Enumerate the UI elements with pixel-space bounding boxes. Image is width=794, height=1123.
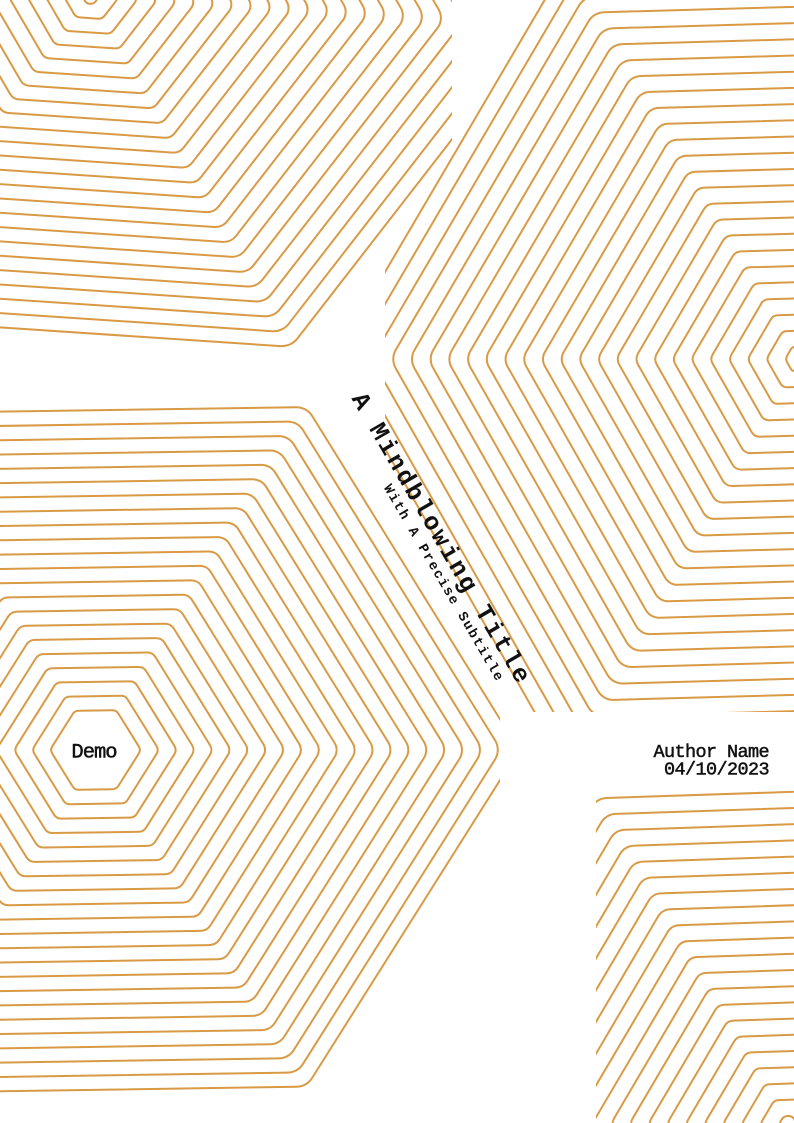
svg-text:04/10/2023: 04/10/2023 [664, 760, 769, 781]
svg-text:Demo: Demo [71, 742, 116, 765]
